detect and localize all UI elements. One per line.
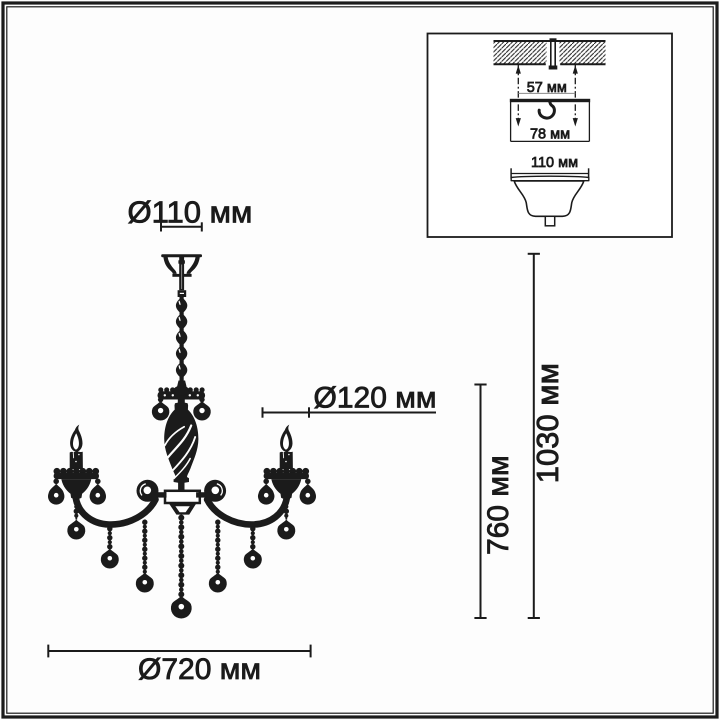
svg-text:760 мм: 760 мм (482, 455, 515, 555)
svg-text:110 мм: 110 мм (531, 155, 578, 171)
svg-text:57 мм: 57 мм (527, 80, 567, 96)
svg-text:Ø110 мм: Ø110 мм (128, 195, 253, 230)
svg-text:1030 мм: 1030 мм (530, 363, 565, 483)
svg-text:Ø720 мм: Ø720 мм (138, 653, 261, 686)
svg-text:Ø120 мм: Ø120 мм (314, 382, 437, 415)
svg-text:78 мм: 78 мм (530, 127, 570, 143)
